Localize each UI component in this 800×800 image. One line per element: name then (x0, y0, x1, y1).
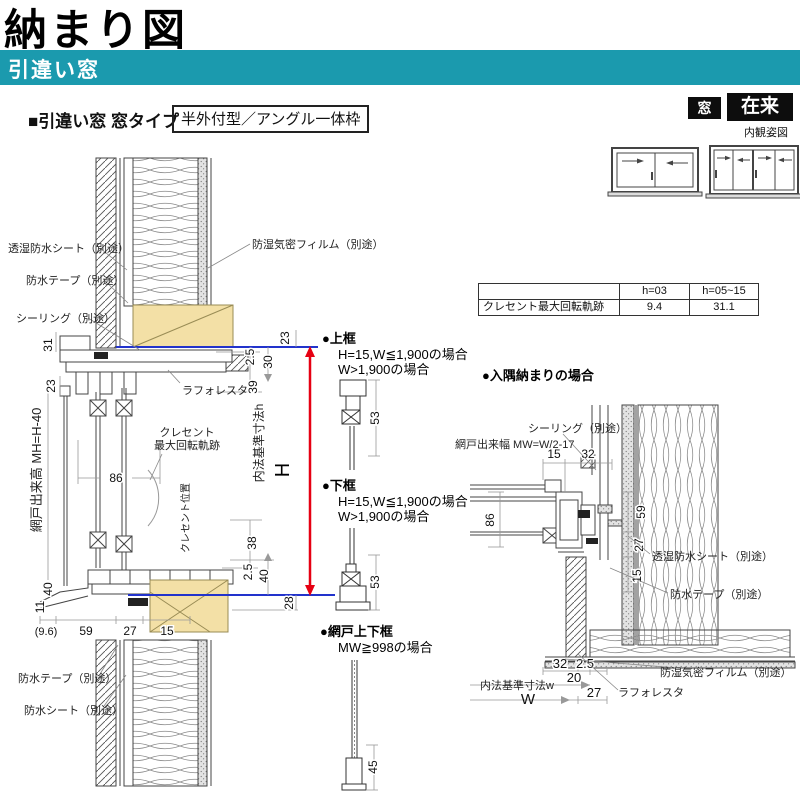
callout-sheet-top: 透湿防水シート（別途） (8, 241, 129, 255)
dim-86: 86 (109, 471, 123, 485)
frame-type-box: 半外付型／アングル一体枠 (172, 105, 369, 133)
dim-23-right: 23 (278, 331, 292, 345)
dim-28: 28 (282, 596, 296, 610)
callout-crescent-line2: 最大回転軌跡 (154, 438, 220, 452)
band-subtitle: 引違い窓 (8, 54, 800, 84)
callout-tape-top: 防水テープ（別途） (26, 273, 124, 287)
corner-callout-film: 防湿気密フィルム（別途） (660, 665, 792, 679)
badge-window: 窓 (688, 97, 721, 119)
window-4panel-diagram (706, 146, 800, 198)
dim-39: 39 (246, 380, 260, 394)
lower-rail-dim-53: 53 (368, 575, 382, 589)
dim-11: 11 (33, 600, 47, 613)
dim-40-right: 40 (257, 569, 271, 583)
corner-callout-screen-width: 網戸出来幅 MW=W/2-17 (455, 437, 574, 451)
corner-dim-32-top: 32 (581, 447, 595, 461)
corner-callout-laforesta: ラフォレスタ (618, 686, 684, 699)
screen-rail-dim-45: 45 (366, 760, 380, 774)
lower-rail-profile (336, 528, 380, 610)
corner-dim-2-5: 2.5 (576, 656, 594, 671)
upper-rail-heading: ●上框 (322, 331, 356, 346)
corner-dim-59: 59 (634, 505, 648, 519)
corner-heading: ●入隅納まりの場合 (482, 368, 595, 383)
callout-tape-bottom: 防水テープ（別途） (18, 671, 116, 685)
callout-film-top: 防湿気密フィルム（別途） (252, 237, 384, 251)
dim-2-5-top: 2.5 (243, 348, 257, 365)
height-arrow-H (305, 346, 315, 596)
dim-31: 31 (41, 338, 55, 352)
drawing-canvas: 31 23 86 23 2.5 30 39 38 2.5 40 28 40 11… (0, 140, 800, 800)
screen-rail-heading: ●網戸上下框 (320, 624, 393, 639)
label-H: H (272, 463, 294, 477)
window-2panel-diagram (608, 148, 702, 196)
badge-zairai: 在来 (727, 93, 793, 121)
label-inner-dim-h: 内法基準寸法h (251, 404, 266, 483)
upper-rail-cond1: H=15,W≦1,900の場合 (338, 347, 468, 362)
view-caption: 内観姿図 (744, 124, 788, 140)
upper-rail-cond2: W>1,900の場合 (338, 362, 429, 377)
callout-laforesta: ラフォレスタ (182, 384, 248, 397)
label-crescent-position: クレセント位置 (179, 483, 192, 553)
lower-rail-heading: ●下框 (322, 478, 356, 493)
dim-59: 59 (79, 624, 93, 638)
label-screen-height: 網戸出来高 MH=H-40 (29, 408, 44, 533)
dim-27: 27 (123, 624, 137, 638)
dim-15: 15 (160, 624, 174, 638)
lower-rail-cond1: H=15,W≦1,900の場合 (338, 494, 468, 509)
dim-30: 30 (261, 355, 275, 369)
section-heading: ■引違い窓 窓タイプ (28, 107, 179, 132)
corner-dim-32-bottom: 32 (553, 656, 567, 671)
dim-23-left: 23 (44, 379, 58, 393)
corner-dim-20: 20 (567, 670, 581, 685)
corner-callout-tape: 防水テープ（別途） (670, 587, 768, 601)
corner-dim-15-v: 15 (630, 569, 644, 583)
teal-band: 引違い窓 (0, 50, 800, 85)
lower-rail-cond2: W>1,900の場合 (338, 509, 429, 524)
screen-rail-cond1: MW≧998の場合 (338, 640, 433, 655)
dim-40-left: 40 (41, 582, 55, 596)
corner-dim-86: 86 (483, 513, 497, 527)
callout-sheet-bottom: 防水シート（別途） (24, 703, 123, 717)
corner-label-W: W (521, 691, 536, 708)
corner-dim-27-bottom: 27 (587, 685, 601, 700)
upper-rail-dim-53: 53 (368, 411, 382, 425)
callout-sealing: シーリング（別途） (16, 311, 115, 325)
dim-2-5-bottom: 2.5 (241, 563, 255, 580)
dim-9-6: (9.6) (35, 626, 58, 638)
dim-38: 38 (245, 536, 259, 550)
corner-callout-sealing: シーリング（別途） (528, 421, 627, 435)
corner-label-inner-dim-w: 内法基準寸法w (480, 678, 554, 692)
callout-crescent-line1: クレセント (160, 426, 215, 439)
corner-callout-sheet: 透湿防水シート（別途） (652, 549, 773, 563)
